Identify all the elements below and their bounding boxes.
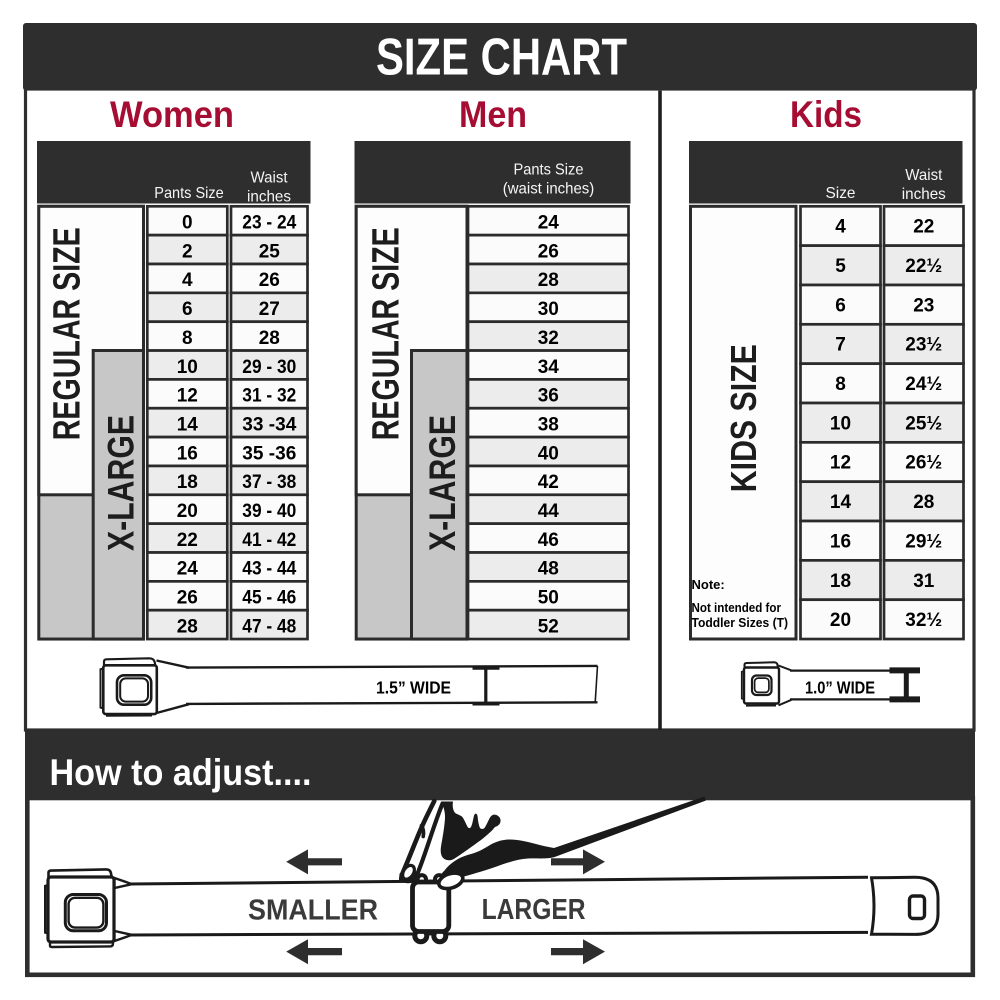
- svg-text:33 -34: 33 -34: [242, 414, 296, 435]
- svg-text:2: 2: [182, 241, 193, 262]
- svg-text:35 -36: 35 -36: [242, 443, 296, 464]
- svg-text:26: 26: [538, 241, 559, 262]
- svg-text:X-LARGE: X-LARGE: [421, 415, 463, 551]
- svg-text:Note:: Note:: [692, 577, 725, 592]
- svg-text:Kids: Kids: [790, 93, 862, 135]
- svg-text:X-LARGE: X-LARGE: [100, 415, 142, 551]
- svg-text:29½: 29½: [905, 531, 942, 552]
- svg-text:40: 40: [538, 443, 559, 464]
- svg-text:32½: 32½: [905, 610, 942, 631]
- svg-text:SMALLER: SMALLER: [248, 895, 378, 927]
- svg-text:Not intended for: Not intended for: [692, 600, 782, 615]
- svg-text:26½: 26½: [905, 453, 942, 474]
- svg-text:25: 25: [259, 241, 281, 262]
- svg-text:22: 22: [913, 217, 934, 238]
- svg-text:28: 28: [259, 328, 280, 349]
- svg-text:14: 14: [830, 492, 852, 513]
- svg-text:10: 10: [177, 357, 198, 378]
- svg-text:34: 34: [538, 357, 560, 378]
- svg-text:8: 8: [835, 374, 846, 395]
- svg-text:39 - 40: 39 - 40: [242, 501, 296, 522]
- svg-text:Toddler Sizes (T): Toddler Sizes (T): [692, 615, 789, 630]
- svg-text:24: 24: [177, 559, 199, 580]
- svg-text:4: 4: [835, 217, 846, 238]
- svg-text:28: 28: [913, 492, 934, 513]
- svg-text:6: 6: [835, 295, 846, 316]
- svg-text:37 - 38: 37 - 38: [242, 472, 296, 493]
- svg-text:27: 27: [259, 299, 280, 320]
- svg-text:18: 18: [830, 571, 851, 592]
- svg-text:42: 42: [538, 472, 559, 493]
- svg-text:0: 0: [182, 213, 193, 234]
- svg-text:Men: Men: [459, 93, 527, 135]
- svg-text:24: 24: [538, 213, 560, 234]
- svg-text:29 - 30: 29 - 30: [242, 357, 296, 378]
- svg-text:41 - 42: 41 - 42: [242, 530, 296, 551]
- svg-text:22: 22: [177, 530, 198, 551]
- svg-text:28: 28: [177, 616, 198, 637]
- svg-text:6: 6: [182, 299, 193, 320]
- svg-text:4: 4: [182, 270, 193, 291]
- svg-text:26: 26: [177, 588, 198, 609]
- svg-text:KIDS SIZE: KIDS SIZE: [723, 344, 764, 492]
- svg-text:48: 48: [538, 559, 559, 580]
- svg-text:24½: 24½: [905, 374, 942, 395]
- svg-text:12: 12: [830, 453, 851, 474]
- svg-text:44: 44: [538, 501, 560, 522]
- svg-text:Waist: Waist: [905, 167, 943, 184]
- svg-text:20: 20: [177, 501, 198, 522]
- svg-text:38: 38: [538, 414, 559, 435]
- svg-text:10: 10: [830, 413, 851, 434]
- svg-text:16: 16: [177, 443, 198, 464]
- svg-text:Size: Size: [826, 185, 856, 202]
- svg-text:1.5” WIDE: 1.5” WIDE: [376, 678, 451, 698]
- svg-text:inches: inches: [902, 186, 946, 203]
- svg-text:30: 30: [538, 299, 559, 320]
- svg-text:46: 46: [538, 530, 559, 551]
- svg-text:25½: 25½: [905, 413, 942, 434]
- svg-text:43 - 44: 43 - 44: [242, 559, 296, 580]
- svg-text:Waist: Waist: [251, 170, 289, 187]
- svg-text:1.0” WIDE: 1.0” WIDE: [805, 677, 875, 697]
- svg-text:23½: 23½: [905, 335, 942, 356]
- svg-text:36: 36: [538, 386, 559, 407]
- svg-text:31: 31: [913, 571, 935, 592]
- svg-text:32: 32: [538, 328, 559, 349]
- svg-text:How to adjust....: How to adjust....: [50, 752, 312, 793]
- svg-text:31 - 32: 31 - 32: [242, 386, 296, 407]
- svg-text:REGULAR SIZE: REGULAR SIZE: [47, 227, 89, 440]
- svg-text:Pants Size: Pants Size: [154, 185, 224, 202]
- svg-text:28: 28: [538, 270, 559, 291]
- svg-text:22½: 22½: [905, 256, 942, 277]
- svg-text:23: 23: [913, 295, 934, 316]
- svg-text:Pants Size: Pants Size: [514, 162, 584, 179]
- svg-text:LARGER: LARGER: [482, 894, 586, 926]
- svg-text:23 - 24: 23 - 24: [242, 213, 296, 234]
- svg-text:45 - 46: 45 - 46: [242, 588, 296, 609]
- svg-text:12: 12: [177, 386, 198, 407]
- svg-text:8: 8: [182, 328, 193, 349]
- svg-text:20: 20: [830, 610, 851, 631]
- svg-text:16: 16: [830, 531, 851, 552]
- svg-text:SIZE CHART: SIZE CHART: [376, 29, 627, 87]
- svg-text:inches: inches: [247, 189, 291, 206]
- svg-text:18: 18: [177, 472, 198, 493]
- svg-text:(waist inches): (waist inches): [503, 181, 595, 198]
- svg-text:52: 52: [538, 616, 559, 637]
- svg-text:REGULAR SIZE: REGULAR SIZE: [366, 227, 408, 440]
- svg-text:50: 50: [538, 588, 559, 609]
- svg-text:5: 5: [835, 256, 846, 277]
- svg-text:14: 14: [177, 414, 199, 435]
- svg-text:Women: Women: [110, 93, 234, 135]
- svg-text:47 - 48: 47 - 48: [242, 616, 296, 637]
- svg-text:7: 7: [835, 335, 846, 356]
- svg-text:26: 26: [259, 270, 280, 291]
